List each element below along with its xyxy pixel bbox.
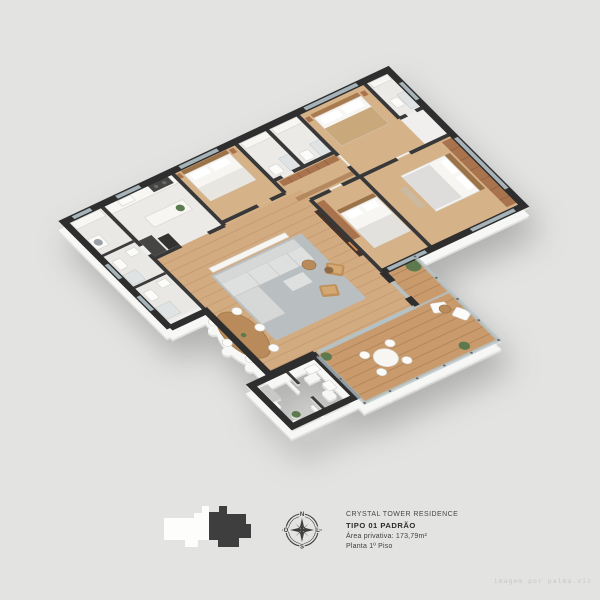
unit-type: TIPO 01 PADRÃO — [346, 522, 458, 530]
compass-n-label: N — [300, 512, 304, 518]
keyplan-icon — [156, 498, 254, 560]
compass-o-label: O — [284, 528, 289, 534]
project-title: CRYSTAL TOWER RESIDENCE — [346, 511, 458, 518]
armchair-1 — [319, 284, 341, 297]
floor-label: Planta 1º Piso — [346, 543, 458, 550]
watermark: imagem por palma.viz — [494, 577, 592, 585]
compass-s-label: S — [300, 545, 304, 551]
compass-l-label: L — [316, 528, 320, 534]
floorplan-marketing-image: N L S O CRYSTAL TOWER RESIDENCE TIPO 01 … — [0, 0, 600, 600]
unit-info-block: CRYSTAL TOWER RESIDENCE TIPO 01 PADRÃO Á… — [346, 511, 458, 554]
compass-rose-icon: N L S O — [281, 509, 323, 551]
private-area: Área privativa: 173,79m² — [346, 533, 458, 540]
